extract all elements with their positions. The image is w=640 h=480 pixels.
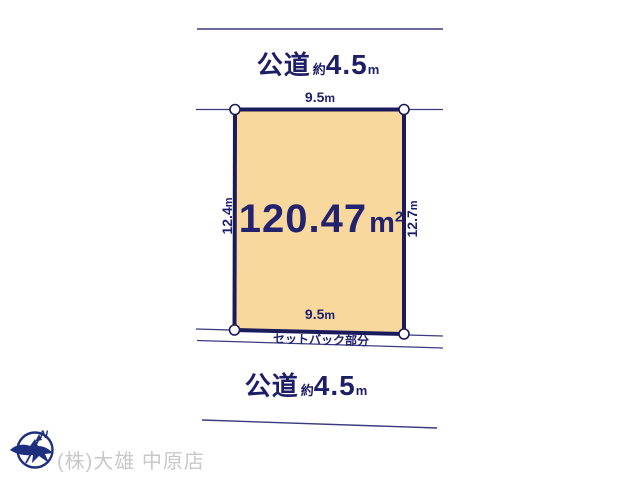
parcel-area-exponent: 2 [395, 208, 403, 225]
bottom-width-value: 9.5 [305, 306, 324, 322]
land-plot-diagram: 公道 約 4.5 m 9.5m 12.4m 12.7m 120.47 m2 9.… [0, 0, 640, 480]
bottom-road-width-value: 4.5 [314, 370, 356, 402]
corner-marker-top-left [230, 105, 240, 115]
bottom-road-far-edge-line [202, 420, 437, 428]
bird-icon [10, 439, 53, 463]
bottom-road-name: 公道 [245, 366, 299, 403]
top-width-value: 9.5 [305, 89, 324, 105]
parcel-area-label: 120.47 m2 [230, 197, 412, 247]
top-road-width-unit: m [368, 62, 380, 77]
top-width-dimension: 9.5m [235, 89, 405, 105]
bottom-road-label: 公道 約 4.5 m [186, 366, 426, 403]
bottom-width-unit: m [324, 308, 335, 322]
top-width-unit: m [324, 91, 335, 105]
top-road-width-value: 4.5 [326, 49, 368, 81]
bottom-width-dimension: 9.5m [235, 306, 405, 322]
compass-logo: N [9, 424, 63, 478]
top-road-name: 公道 [257, 45, 311, 82]
top-road-approx: 約 [313, 59, 326, 78]
bottom-road-width-unit: m [356, 383, 368, 398]
bottom-road-approx: 約 [301, 380, 314, 399]
corner-marker-top-right [399, 105, 409, 115]
parcel-area-value: 120.47 [239, 197, 367, 242]
top-road-label: 公道 約 4.5 m [198, 45, 438, 82]
company-name: (株)大雄 中原店 [57, 445, 205, 474]
parcel-area-unit: m2 [369, 207, 403, 240]
compass-north-label: N [40, 429, 49, 441]
